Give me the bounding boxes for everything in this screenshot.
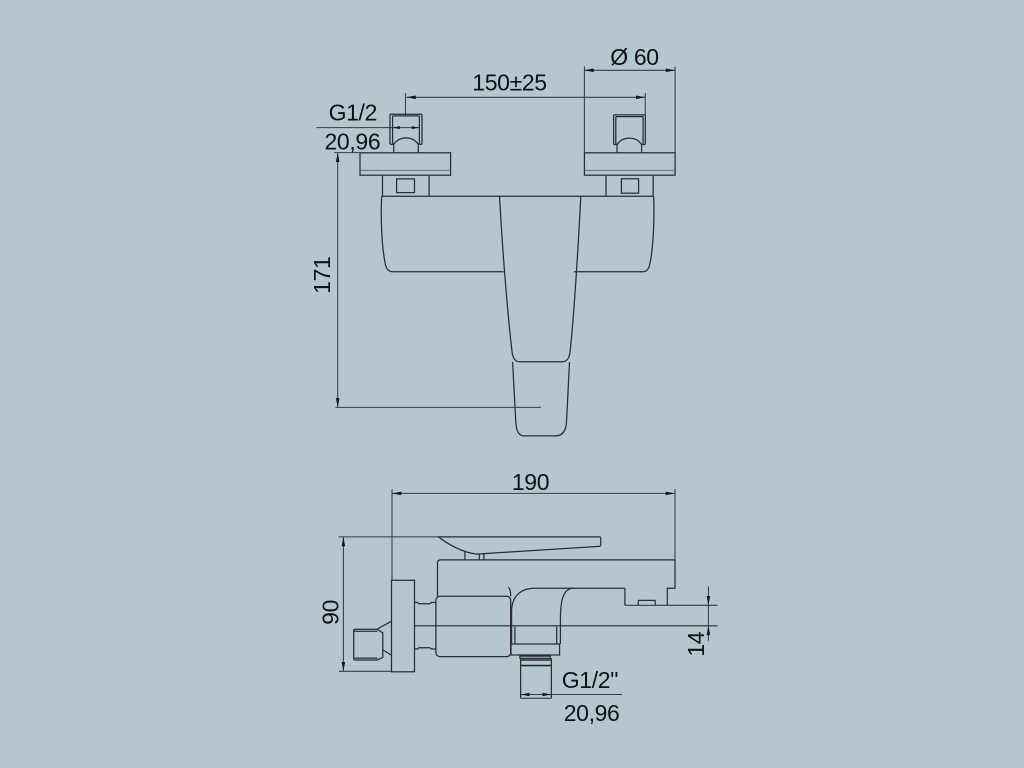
svg-text:190: 190	[512, 469, 549, 495]
svg-text:G1/2": G1/2"	[562, 667, 618, 693]
svg-text:90: 90	[318, 600, 344, 625]
svg-text:Ø 60: Ø 60	[610, 44, 658, 70]
svg-text:20,96: 20,96	[324, 128, 380, 154]
svg-text:G1/2: G1/2	[329, 99, 377, 125]
svg-text:14: 14	[683, 631, 709, 656]
svg-text:20,96: 20,96	[564, 700, 620, 726]
svg-text:150±25: 150±25	[472, 70, 546, 96]
svg-text:171: 171	[309, 257, 335, 294]
